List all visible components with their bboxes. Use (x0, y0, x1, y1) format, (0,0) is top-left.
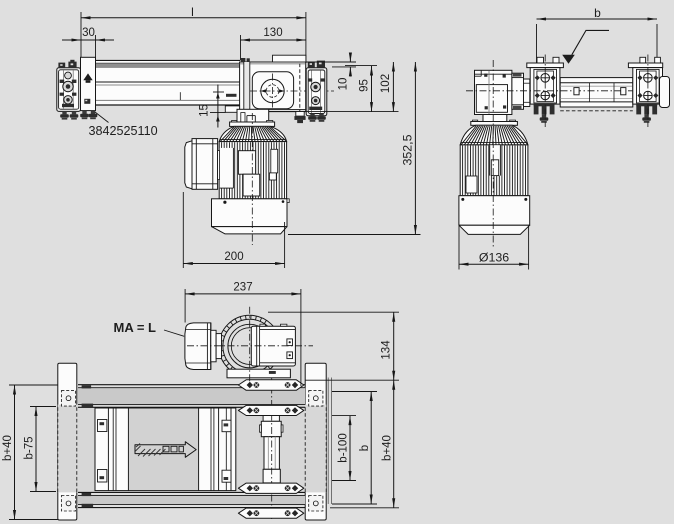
svg-text:10: 10 (337, 78, 349, 91)
svg-text:b: b (594, 6, 601, 20)
svg-text:b+40: b+40 (381, 435, 393, 461)
svg-text:352,5: 352,5 (401, 134, 415, 165)
svg-text:b-100: b-100 (338, 433, 350, 462)
svg-text:3842525110: 3842525110 (89, 124, 158, 138)
svg-text:b-75: b-75 (24, 436, 36, 459)
svg-text:200: 200 (224, 251, 243, 263)
svg-text:95: 95 (358, 79, 370, 92)
svg-text:l: l (191, 5, 194, 19)
svg-text:30: 30 (82, 27, 95, 39)
svg-text:15: 15 (199, 104, 211, 117)
svg-text:130: 130 (263, 27, 282, 39)
svg-text:134: 134 (380, 340, 392, 360)
svg-text:237: 237 (233, 282, 252, 294)
svg-text:102: 102 (380, 74, 392, 93)
svg-text:Ø136: Ø136 (479, 251, 509, 265)
svg-text:b+40: b+40 (2, 435, 14, 461)
svg-text:b: b (359, 445, 371, 451)
svg-text:MA = L: MA = L (114, 320, 157, 335)
